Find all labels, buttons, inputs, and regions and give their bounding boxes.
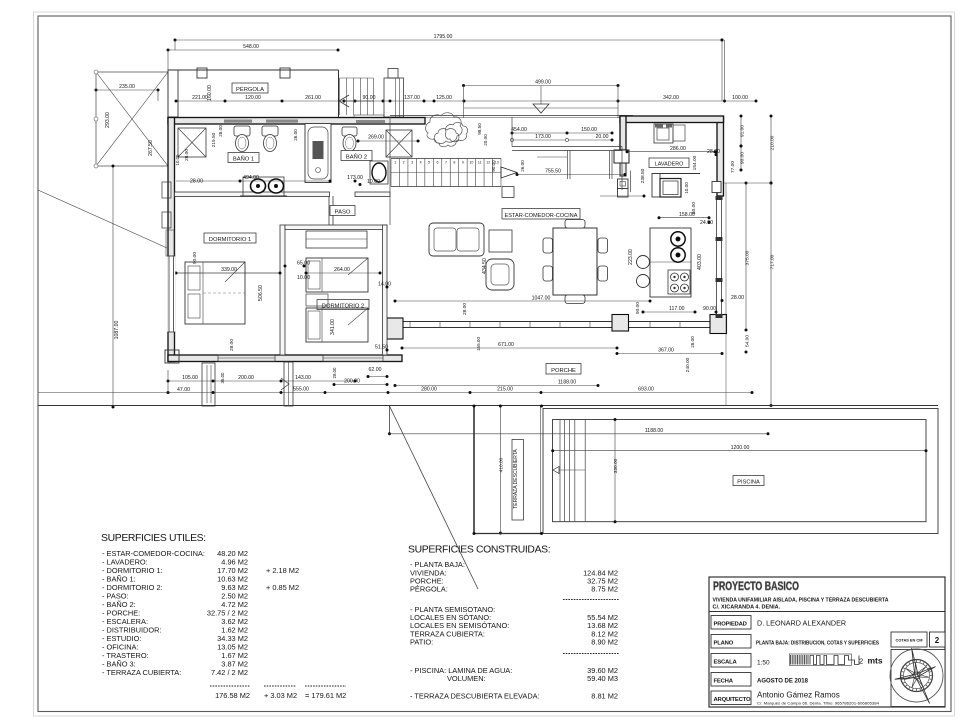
svg-text:717.00: 717.00 [770, 254, 776, 269]
svg-text:26.00: 26.00 [520, 160, 525, 172]
svg-text:150.00: 150.00 [581, 127, 597, 133]
svg-text:2: 2 [935, 636, 940, 645]
svg-text:10.00: 10.00 [297, 275, 310, 281]
svg-text:143.00: 143.00 [295, 375, 311, 381]
svg-text:mts: mts [868, 656, 883, 666]
svg-text:280.00: 280.00 [421, 387, 437, 393]
svg-text:154.00: 154.00 [692, 155, 698, 170]
svg-text:494.00: 494.00 [243, 175, 259, 181]
svg-text:PLANTA BAJA: DISTRIBUCION, COT: PLANTA BAJA: DISTRIBUCION, COTAS Y SUPER… [756, 641, 879, 647]
svg-text:4: 4 [420, 161, 422, 165]
svg-text:90.00: 90.00 [740, 152, 746, 164]
svg-text:403.00: 403.00 [697, 254, 703, 270]
svg-text:8: 8 [453, 161, 455, 165]
svg-text:28.00: 28.00 [229, 339, 235, 351]
svg-text:+ 0.85 M2: + 0.85 M2 [266, 583, 299, 592]
svg-text:269.00: 269.00 [368, 135, 384, 141]
svg-text:20.00: 20.00 [596, 134, 609, 140]
svg-text:339.00: 339.00 [221, 267, 237, 273]
svg-text:26.00: 26.00 [293, 129, 298, 141]
svg-text:90.00: 90.00 [491, 160, 496, 172]
svg-text:330.00: 330.00 [613, 458, 619, 473]
svg-text:11: 11 [478, 161, 482, 165]
svg-text:VIVIENDA UNIFAMILIAR AISLADA,: VIVIENDA UNIFAMILIAR AISLADA, PISCINA Y … [713, 598, 889, 604]
svg-text:341.00: 341.00 [330, 319, 336, 335]
svg-text:47.00: 47.00 [177, 387, 190, 393]
svg-text:91.00: 91.00 [740, 125, 746, 137]
svg-text:28.00: 28.00 [462, 303, 468, 315]
svg-text:28.00: 28.00 [218, 125, 223, 137]
svg-text:10.00: 10.00 [367, 179, 380, 185]
svg-text:267.50: 267.50 [148, 140, 154, 156]
svg-text:ESTAR-COMEDOR-COCINA: ESTAR-COMEDOR-COCINA [505, 213, 578, 219]
svg-text:8.90 M2: 8.90 M2 [591, 638, 618, 647]
svg-text:454.00: 454.00 [511, 127, 527, 133]
svg-text:9: 9 [462, 161, 464, 165]
svg-text:223.00: 223.00 [628, 249, 634, 265]
svg-text:PÉRGOLA:: PÉRGOLA: [410, 585, 448, 594]
svg-text:240.00: 240.00 [685, 357, 691, 372]
svg-text:215.00: 215.00 [497, 387, 513, 393]
svg-text:10: 10 [469, 161, 473, 165]
svg-text:DORMITORIO 1: DORMITORIO 1 [209, 237, 251, 243]
svg-text:8.75 M2: 8.75 M2 [591, 585, 618, 594]
svg-text:PORCHE: PORCHE [551, 368, 576, 374]
svg-text:755.50: 755.50 [545, 169, 561, 175]
svg-text:548.00: 548.00 [243, 44, 259, 50]
svg-text:10.00: 10.00 [175, 154, 180, 166]
svg-text:200.00: 200.00 [238, 375, 254, 381]
svg-text:LAVADERO: LAVADERO [655, 162, 684, 168]
svg-text:35.00: 35.00 [220, 372, 225, 384]
svg-text:117.00: 117.00 [669, 306, 685, 312]
svg-text:1188.00: 1188.00 [645, 428, 663, 434]
svg-text:434.50: 434.50 [482, 258, 488, 274]
svg-text:5: 5 [428, 161, 430, 165]
svg-text:367.00: 367.00 [658, 348, 674, 354]
svg-text:28.00: 28.00 [332, 367, 337, 379]
svg-text:1087.00: 1087.00 [114, 321, 120, 340]
svg-text:20.00: 20.00 [483, 134, 488, 146]
svg-text:COTAS EN CM: COTAS EN CM [896, 638, 923, 643]
svg-text:54.00: 54.00 [745, 335, 751, 347]
svg-text:671.00: 671.00 [498, 342, 514, 348]
svg-text:120.00: 120.00 [245, 95, 261, 101]
svg-text:PATIO:: PATIO: [410, 638, 433, 647]
svg-text:499.00: 499.00 [535, 79, 551, 85]
svg-text:158.00: 158.00 [679, 212, 695, 218]
svg-text:264.00: 264.00 [334, 267, 350, 273]
svg-text:PASO: PASO [335, 210, 351, 216]
svg-text:AGOSTO DE 2018: AGOSTO DE 2018 [757, 679, 809, 685]
svg-text:TERRAZA DESCUBIERTA: TERRAZA DESCUBIERTA [513, 449, 519, 509]
svg-text:410.00: 410.00 [499, 457, 505, 472]
svg-text:Antonio Gámez Ramos: Antonio Gámez Ramos [757, 691, 840, 700]
svg-text:12: 12 [486, 161, 490, 165]
svg-text:90.00: 90.00 [635, 302, 641, 314]
svg-text:PROYECTO BASICO: PROYECTO BASICO [713, 579, 799, 593]
svg-text:14.00: 14.00 [378, 282, 391, 288]
svg-text:28.00: 28.00 [190, 179, 203, 185]
svg-text:ARQUITECTO: ARQUITECTO [714, 697, 751, 703]
svg-text:90.00: 90.00 [192, 252, 198, 264]
svg-text:PLANO: PLANO [714, 640, 734, 646]
svg-text:28.00: 28.00 [184, 149, 190, 161]
svg-text:- TERRAZA DESCUBIERTA ELEVADA:: - TERRAZA DESCUBIERTA ELEVADA: [410, 692, 540, 701]
svg-text:FECHA: FECHA [714, 678, 734, 684]
svg-text:105.00: 105.00 [182, 375, 198, 381]
svg-text:137.00: 137.00 [404, 95, 420, 101]
svg-text:375.00: 375.00 [745, 250, 751, 265]
svg-text:D. LEONARD ALEXANDER: D. LEONARD ALEXANDER [757, 619, 846, 628]
svg-text:28.00: 28.00 [690, 336, 695, 348]
svg-text:C/. XICARANDA 4. DENIA.: C/. XICARANDA 4. DENIA. [713, 605, 781, 611]
svg-text:1188.00: 1188.00 [558, 380, 576, 386]
svg-text:+ 2.18 M2: + 2.18 M2 [266, 566, 299, 575]
svg-text:VOLUMEN:: VOLUMEN: [447, 674, 486, 683]
svg-text:176.58 M2: 176.58 M2 [215, 691, 250, 700]
svg-text:235.00: 235.00 [119, 84, 135, 90]
svg-text:PÉRGOLA: PÉRGOLA [236, 86, 264, 93]
svg-text:1047.00: 1047.00 [532, 296, 551, 302]
svg-text:BAÑO 1: BAÑO 1 [233, 156, 254, 163]
svg-text:7.42 / 2 M2: 7.42 / 2 M2 [211, 668, 248, 677]
svg-text:77.00: 77.00 [730, 161, 736, 173]
svg-text:2: 2 [403, 161, 405, 165]
svg-text:506.50: 506.50 [258, 285, 264, 301]
svg-text:200.00: 200.00 [344, 379, 360, 385]
svg-text:1795.00: 1795.00 [434, 34, 453, 40]
svg-text:219.50: 219.50 [211, 132, 217, 147]
svg-text:ESCALA: ESCALA [714, 659, 738, 665]
svg-text:+ 3.03 M2: + 3.03 M2 [264, 691, 297, 700]
svg-text:98.50: 98.50 [477, 123, 482, 135]
svg-text:8.81 M2: 8.81 M2 [591, 692, 618, 701]
svg-text:155.00: 155.00 [476, 337, 481, 351]
svg-text:BAÑO 2: BAÑO 2 [346, 154, 367, 161]
svg-text:1: 1 [394, 161, 396, 165]
svg-text:C/. Marqués de Campo 66. Dénia: C/. Marqués de Campo 66. Dénia. Tlfno: 9… [757, 701, 880, 706]
svg-text:PISCINA: PISCINA [737, 480, 760, 486]
svg-text:3: 3 [411, 161, 413, 165]
svg-text:10.00: 10.00 [684, 182, 689, 194]
svg-text:238.50: 238.50 [640, 168, 646, 183]
svg-text:24.00: 24.00 [700, 220, 713, 226]
svg-text:2: 2 [859, 657, 863, 666]
svg-text:1:50: 1:50 [757, 660, 770, 667]
svg-text:SUPERFICIES UTILES:: SUPERFICIES UTILES: [101, 533, 206, 544]
svg-text:- TERRAZA CUBIERTA:: - TERRAZA CUBIERTA: [102, 668, 181, 677]
svg-text:= 179.61 M2: = 179.61 M2 [305, 691, 346, 700]
svg-text:210.00: 210.00 [770, 135, 776, 150]
svg-text:59.40 M3: 59.40 M3 [587, 674, 618, 683]
svg-text:90.00: 90.00 [703, 306, 716, 312]
svg-text:125.00: 125.00 [436, 95, 452, 101]
svg-text:693.00: 693.00 [638, 387, 654, 393]
svg-text:PROPIEDAD: PROPIEDAD [714, 621, 747, 627]
svg-text:261.00: 261.00 [305, 95, 321, 101]
svg-text:6: 6 [437, 161, 439, 165]
svg-text:221.00: 221.00 [192, 95, 208, 101]
svg-text:62.00: 62.00 [369, 367, 382, 373]
svg-text:555.00: 555.00 [293, 387, 309, 393]
svg-text:293.00: 293.00 [105, 112, 111, 128]
svg-text:1200.00: 1200.00 [731, 445, 750, 451]
svg-text:SUPERFICIES CONSTRUIDAS:: SUPERFICIES CONSTRUIDAS: [408, 545, 550, 556]
svg-text:7: 7 [445, 161, 447, 165]
svg-text:100.00: 100.00 [732, 95, 748, 101]
svg-text:28.00: 28.00 [707, 149, 720, 155]
svg-text:160.00: 160.00 [207, 85, 213, 101]
svg-text:286.00: 286.00 [670, 146, 686, 152]
svg-text:342.00: 342.00 [663, 95, 679, 101]
svg-text:173.00: 173.00 [535, 134, 551, 140]
svg-text:28.00: 28.00 [731, 295, 744, 301]
